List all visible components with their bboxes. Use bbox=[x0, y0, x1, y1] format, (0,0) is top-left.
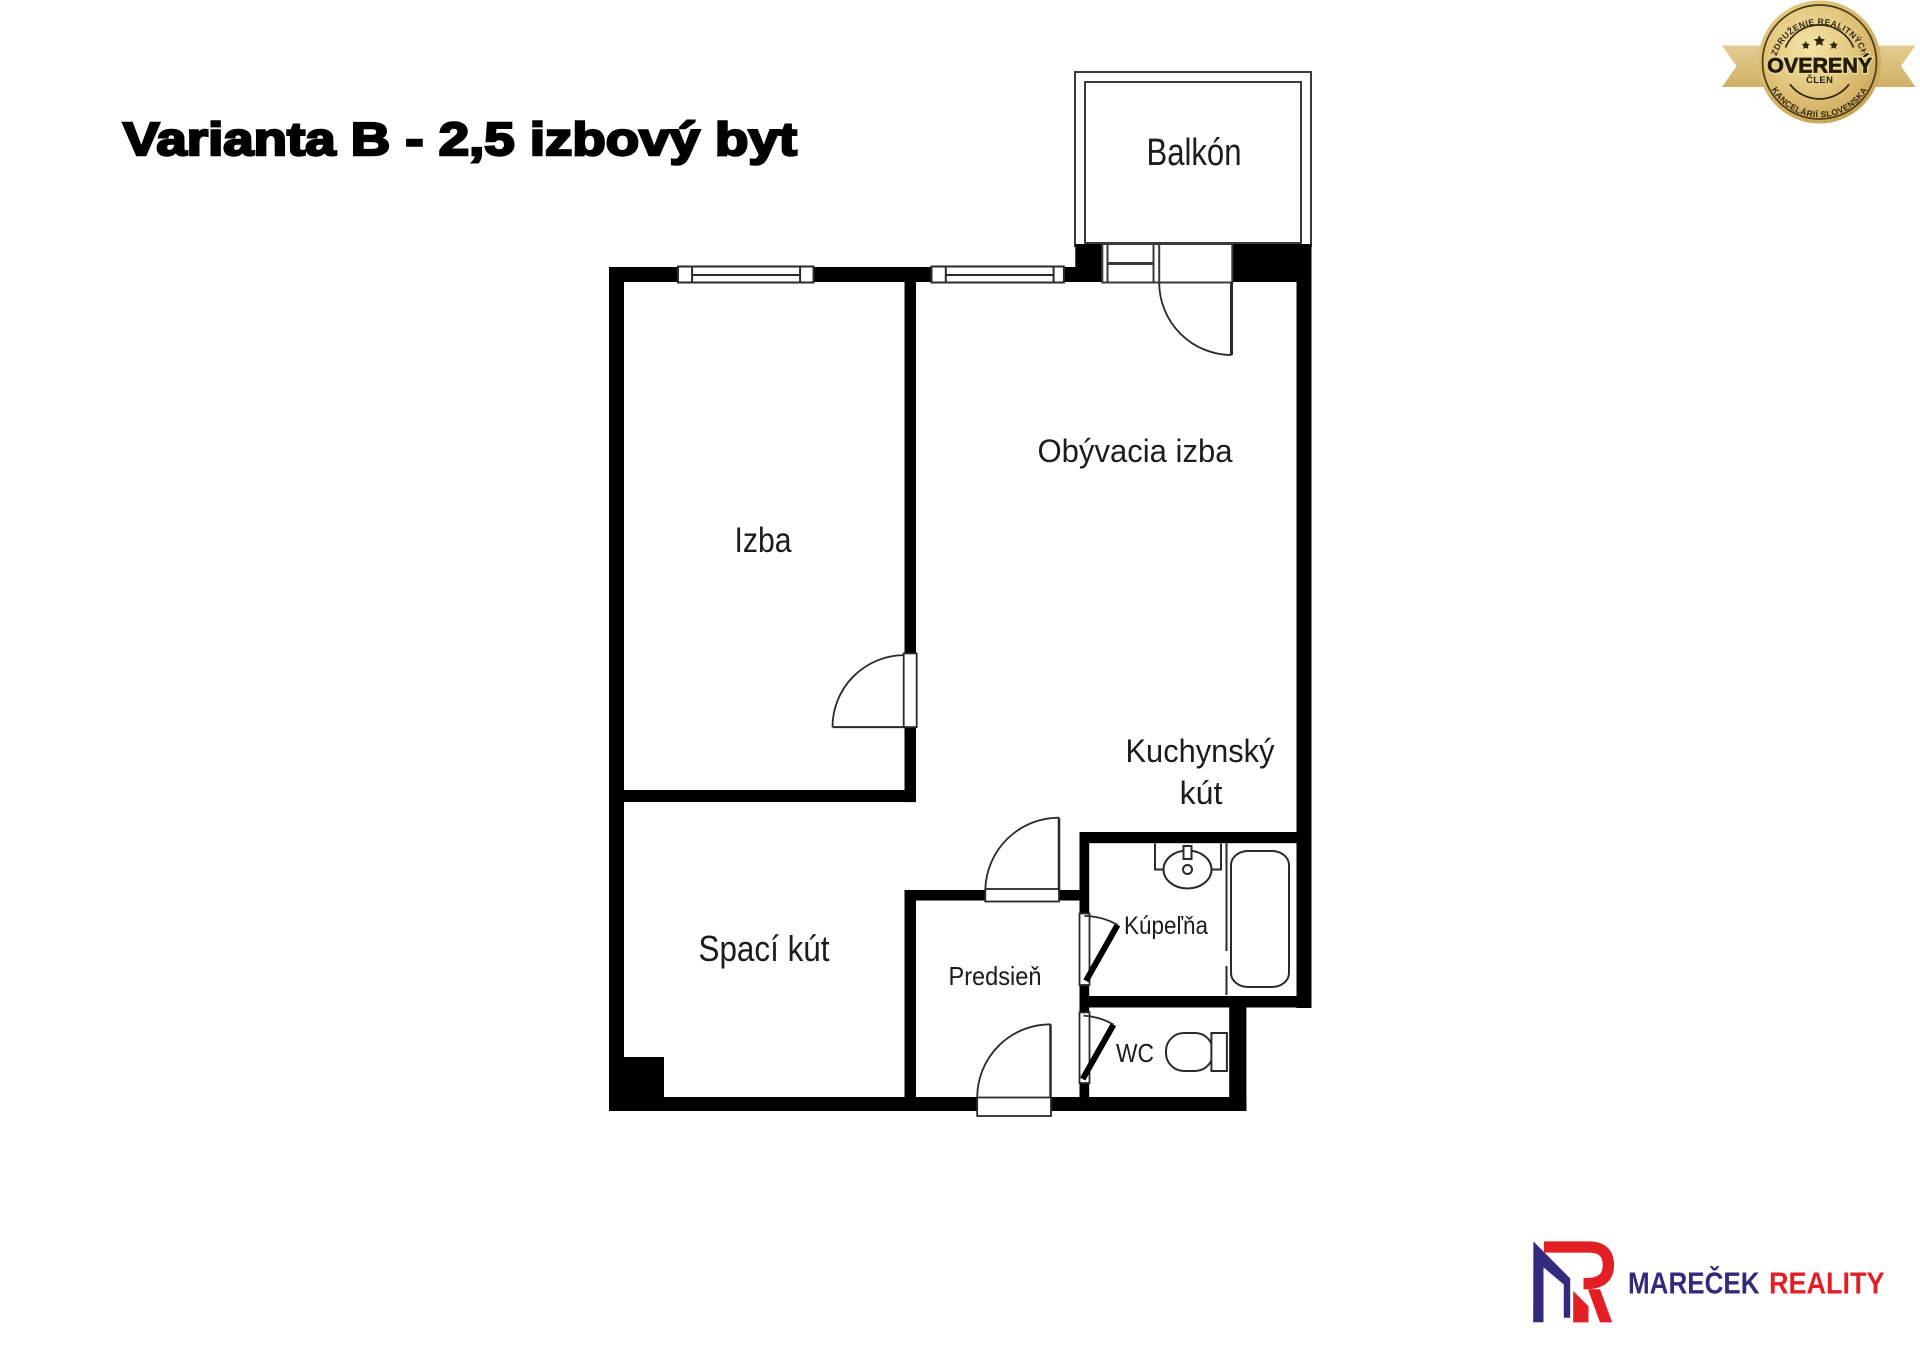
svg-text:Obývacia izba: Obývacia izba bbox=[1038, 433, 1233, 469]
svg-text:Varianta B - 2,5 izbový byt: Varianta B - 2,5 izbový byt bbox=[123, 113, 797, 165]
svg-text:Kuchynský: Kuchynský bbox=[1126, 733, 1275, 769]
svg-text:Balkón: Balkón bbox=[1147, 132, 1242, 174]
svg-text:ČLEN: ČLEN bbox=[1806, 74, 1833, 85]
svg-text:WC: WC bbox=[1116, 1038, 1154, 1068]
svg-text:kút: kút bbox=[1180, 775, 1223, 811]
svg-text:Predsieň: Predsieň bbox=[949, 961, 1042, 991]
svg-text:Izba: Izba bbox=[735, 521, 792, 560]
svg-text:MAREČEK: MAREČEK bbox=[1628, 1265, 1760, 1301]
svg-text:REALITY: REALITY bbox=[1769, 1267, 1885, 1301]
svg-text:Spací kút: Spací kút bbox=[699, 928, 830, 969]
svg-text:Kúpeľňa: Kúpeľňa bbox=[1124, 912, 1208, 940]
